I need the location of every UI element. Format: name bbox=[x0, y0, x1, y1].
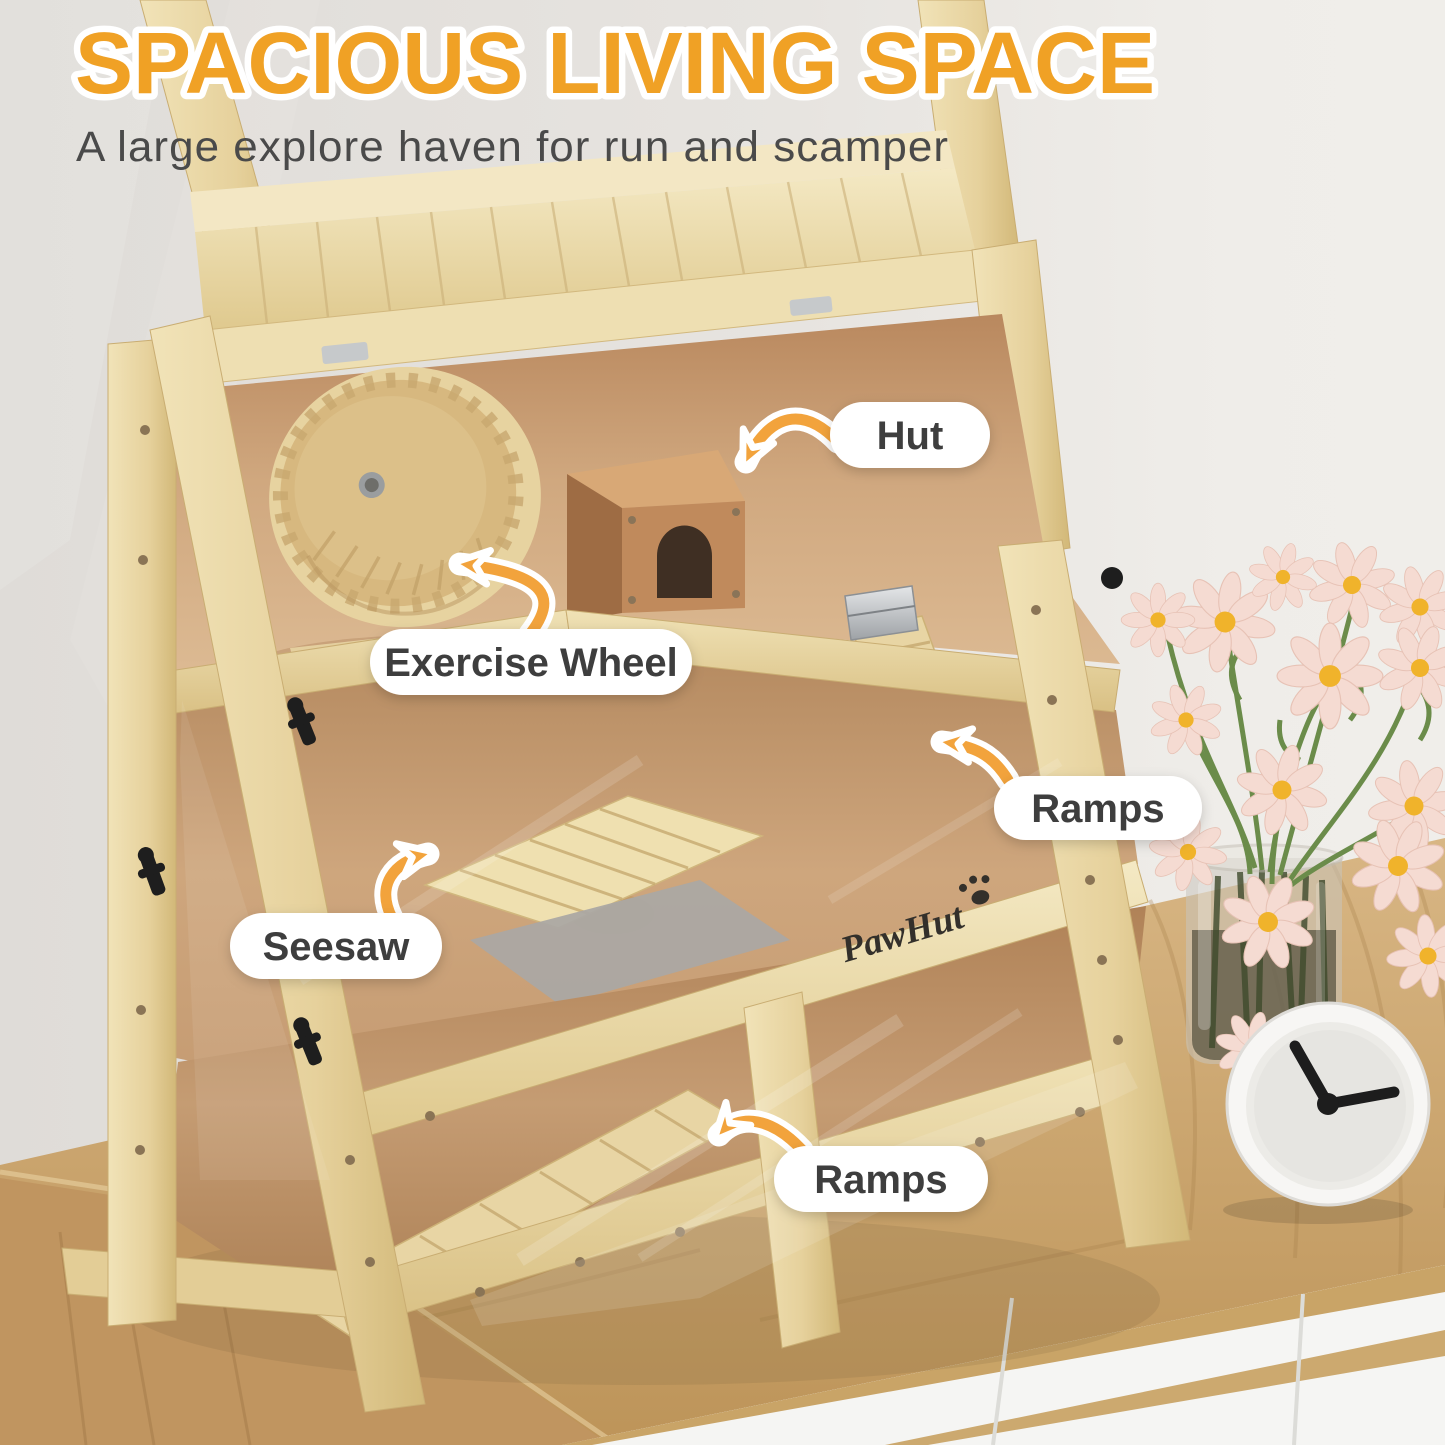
page-title: SPACIOUS LIVING SPACE bbox=[75, 15, 1155, 112]
exercise-wheel-label: Exercise Wheel bbox=[370, 629, 692, 695]
seesaw-label-text: Seesaw bbox=[263, 925, 411, 969]
post-back-left bbox=[108, 338, 176, 1326]
ramp-hinge-icon bbox=[845, 586, 918, 640]
ramps-lower-label-text: Ramps bbox=[814, 1158, 947, 1202]
page-subtitle: A large explore haven for run and scampe… bbox=[76, 123, 949, 171]
seesaw-label: Seesaw bbox=[230, 913, 442, 979]
ramps-lower-label: Ramps bbox=[774, 1146, 988, 1212]
ramps-upper-label-text: Ramps bbox=[1031, 787, 1164, 831]
clock-hub bbox=[1317, 1093, 1339, 1115]
product-infographic: PawHut bbox=[0, 0, 1445, 1445]
hut-door bbox=[657, 525, 712, 598]
hut bbox=[567, 450, 745, 622]
ramps-upper-label: Ramps bbox=[994, 776, 1202, 840]
hut-label: Hut bbox=[830, 402, 990, 468]
knob-icon bbox=[1101, 567, 1123, 589]
exercise-wheel-label-text: Exercise Wheel bbox=[384, 641, 678, 685]
hut-label-text: Hut bbox=[877, 414, 944, 458]
scene: PawHut bbox=[0, 0, 1445, 1445]
